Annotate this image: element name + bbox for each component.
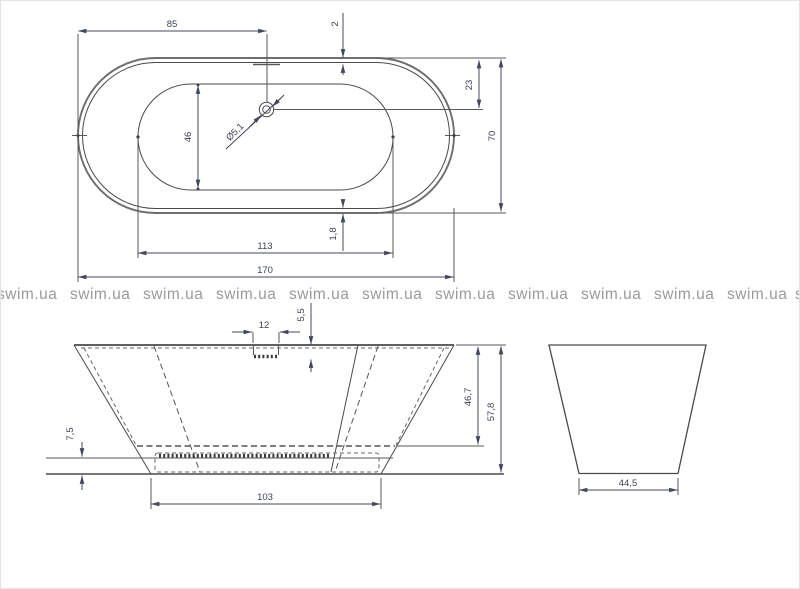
dim-7-5: 7,5	[65, 427, 76, 440]
drawing-svg: 85 2 23 70 46 Ø5,1 1,8 113 170 swi	[1, 1, 800, 589]
dim-46-7: 46,7	[463, 388, 474, 407]
watermark-text: swim.ua	[508, 286, 568, 303]
front-right-wall-inner	[396, 348, 444, 445]
dim-dot	[197, 188, 200, 191]
dim-57-8: 57,8	[486, 403, 497, 422]
watermark-text: swim.ua	[795, 286, 800, 303]
dim-5-5: 5,5	[296, 308, 307, 321]
watermark-text: swim.ua	[654, 286, 714, 303]
front-left-wall-inner	[84, 348, 136, 445]
front-left-outer-slant	[74, 345, 151, 474]
dim-44-5: 44,5	[619, 478, 638, 489]
dim-2: 2	[330, 21, 341, 26]
side-outline	[549, 345, 706, 474]
tick-dot	[453, 134, 456, 137]
dim-1-8: 1,8	[328, 227, 339, 240]
dim-12: 12	[259, 320, 270, 331]
drain-leader-arrow-b	[272, 95, 284, 107]
dim-70: 70	[487, 131, 498, 142]
dim-170: 170	[257, 265, 273, 276]
drain-outer-circle	[259, 102, 273, 116]
watermark-text: swim.ua	[727, 286, 787, 303]
watermark-text: swim.ua	[289, 286, 349, 303]
watermark-text: swim.ua	[70, 286, 130, 303]
watermark-text: swim.ua	[1, 286, 57, 303]
side-view: 44,5	[549, 345, 706, 495]
dim-dot	[197, 84, 200, 87]
front-view: 12 5,5 7,5 46,7 57,8 103	[46, 303, 506, 509]
watermark-row: swim.ua swim.ua swim.ua swim.ua swim.ua …	[1, 286, 800, 303]
technical-drawing-sheet: 85 2 23 70 46 Ø5,1 1,8 113 170 swi	[0, 0, 800, 589]
dim-23: 23	[464, 80, 475, 91]
watermark-text: swim.ua	[216, 286, 276, 303]
dim-103: 103	[257, 492, 273, 503]
drain-leader-arrow-a	[249, 115, 261, 127]
top-view: 85 2 23 70 46 Ø5,1 1,8 113 170	[72, 13, 506, 282]
front-right-outer-slant	[381, 345, 454, 474]
watermark-text: swim.ua	[435, 286, 495, 303]
watermark-text: swim.ua	[362, 286, 422, 303]
dim-113: 113	[257, 241, 272, 252]
dim-46: 46	[183, 132, 194, 143]
watermark-text: swim.ua	[143, 286, 203, 303]
tub-bowl-edge	[138, 84, 393, 190]
watermark-text: swim.ua	[581, 286, 641, 303]
dim-85: 85	[167, 19, 178, 30]
